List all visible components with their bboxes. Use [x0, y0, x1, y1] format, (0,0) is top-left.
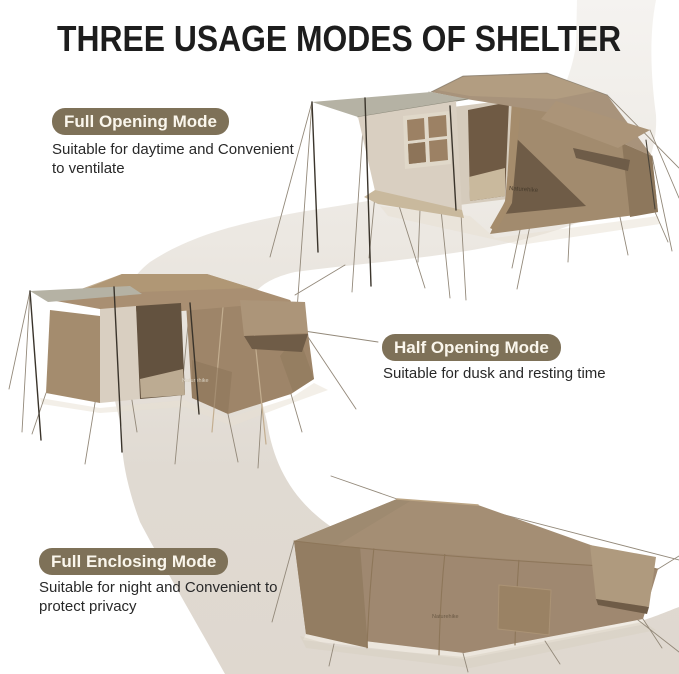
svg-text:Naturehike: Naturehike	[432, 614, 459, 620]
svg-text:Naturehike: Naturehike	[182, 378, 209, 384]
